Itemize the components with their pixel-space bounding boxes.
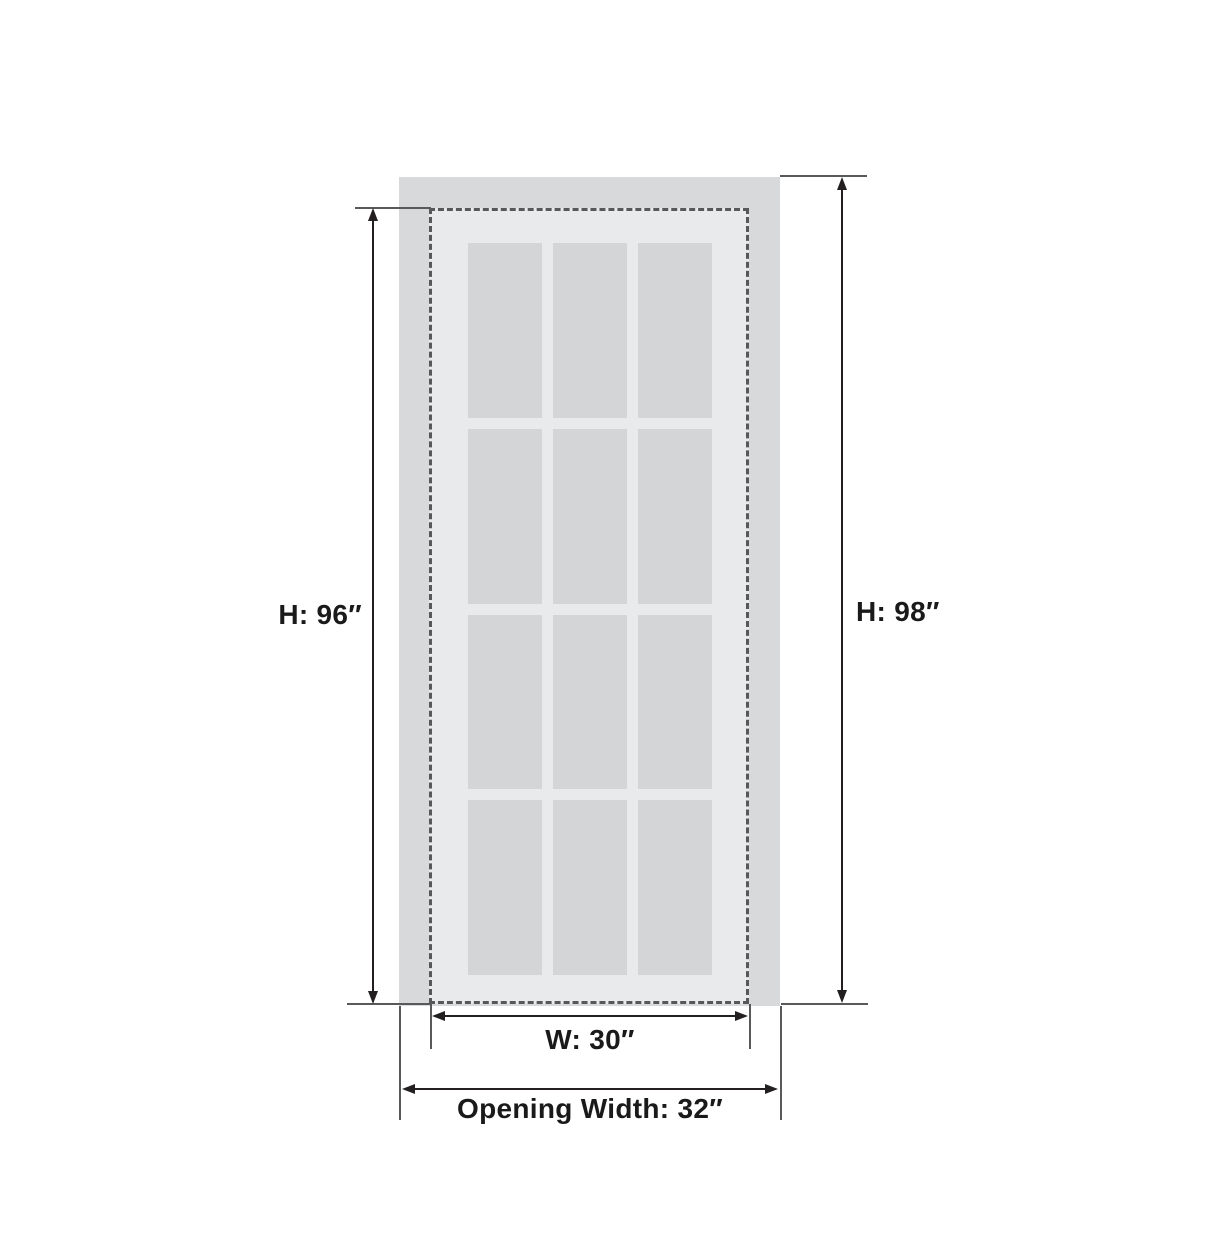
glass-pane [553, 615, 627, 790]
door-dimension-diagram: H: 96″ H: 98″ W: 30″ Opening Width: 32″ [0, 0, 1214, 1250]
glass-lites-grid [468, 243, 712, 975]
glass-pane [638, 429, 712, 604]
opening-width-right-extension [780, 1006, 782, 1120]
door-slab [429, 208, 749, 1004]
door-height-bottom-tick [347, 1003, 431, 1005]
arrow-up-icon [837, 177, 847, 190]
glass-pane [638, 615, 712, 790]
arrow-right-icon [735, 1011, 748, 1021]
arrow-left-icon [402, 1084, 415, 1094]
door-height-dimension-line [372, 214, 374, 998]
arrow-left-icon [432, 1011, 445, 1021]
glass-pane [553, 243, 627, 418]
opening-height-dimension-line [841, 183, 843, 998]
glass-pane [468, 429, 542, 604]
arrow-right-icon [765, 1084, 778, 1094]
glass-pane [553, 429, 627, 604]
door-width-dimension-line [437, 1015, 744, 1017]
opening-height-label: H: 98″ [856, 598, 940, 626]
glass-pane [638, 243, 712, 418]
opening-width-dimension-line [407, 1088, 774, 1090]
door-width-right-extension [749, 1004, 751, 1049]
glass-pane [468, 800, 542, 975]
door-height-label: H: 96″ [142, 601, 362, 629]
arrow-up-icon [368, 208, 378, 221]
arrow-down-icon [837, 990, 847, 1003]
glass-pane [468, 615, 542, 790]
arrow-down-icon [368, 991, 378, 1004]
opening-width-label: Opening Width: 32″ [400, 1095, 780, 1123]
glass-pane [468, 243, 542, 418]
glass-pane [638, 800, 712, 975]
door-width-label: W: 30″ [440, 1026, 740, 1054]
door-height-top-tick [355, 207, 431, 209]
glass-pane [553, 800, 627, 975]
opening-height-top-tick [780, 175, 867, 177]
opening-height-bottom-tick [781, 1003, 868, 1005]
